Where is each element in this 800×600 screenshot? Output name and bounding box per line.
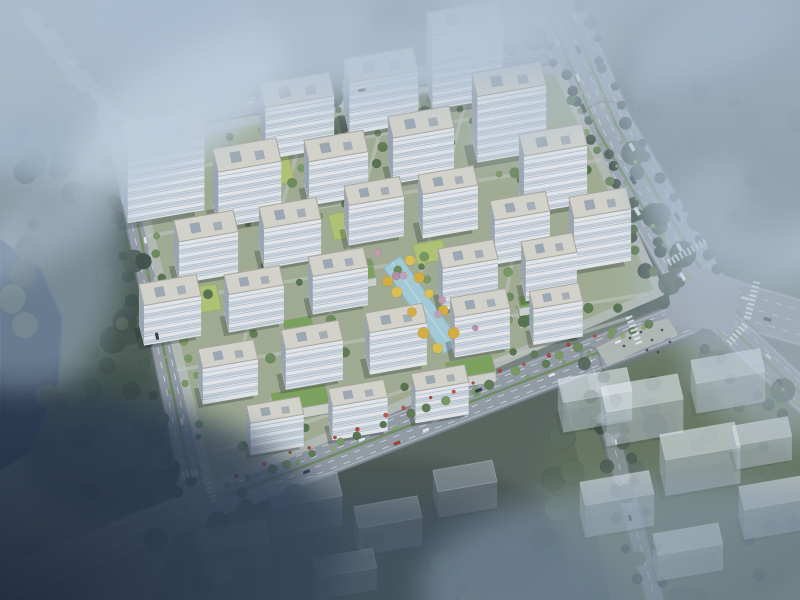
aerial-render-stage bbox=[0, 0, 800, 600]
aerial-rendering bbox=[0, 0, 800, 600]
